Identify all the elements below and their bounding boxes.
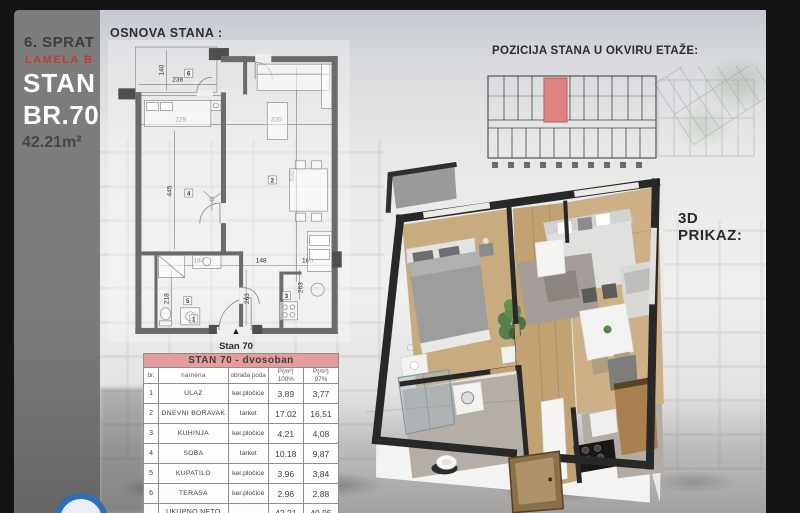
dim-hall-height: 263 <box>244 293 251 304</box>
cell-p97: 2,88 <box>303 484 338 504</box>
col-header-name: namena <box>159 368 229 384</box>
position-title: POZICIJA STANA U OKVIRU ETAŽE: <box>492 45 698 57</box>
cell-no: 1 <box>144 384 159 404</box>
cell-floor: tarket <box>228 444 268 464</box>
stan-pointer: ▲ Stan 70 <box>201 327 271 354</box>
floorplan-drawing: 140 238 229 320 445 532 184 148 160 218 … <box>108 40 350 342</box>
col-header-p100: P(m²) 100% <box>268 368 303 384</box>
cell-floor: ker.pločice <box>228 384 268 404</box>
floorplan-title: OSNOVA STANA : <box>110 26 223 40</box>
total-p100: 42.21 <box>268 504 303 513</box>
lamela-label: LAMELA B <box>25 54 93 66</box>
cell-p97: 3,77 <box>303 384 338 404</box>
area-table: STAN 70 - dvosoban br. namena obrada pod… <box>143 353 339 513</box>
table-row: 3 KUHINJA ker.pločice 4.21 4,08 <box>144 424 339 444</box>
cell-no: 4 <box>144 444 159 464</box>
table-row: 2 DNEVNI BORAVAK tarket 17.02 16,51 <box>144 404 339 424</box>
table-title: STAN 70 - dvosoban <box>144 354 339 368</box>
cell-p100: 3.96 <box>268 464 303 484</box>
col-header-floor: obrada poda <box>228 368 268 384</box>
table-row: 6 TERASA ker.pločice 2.96 2,88 <box>144 484 339 504</box>
cell-name: KUPATILO <box>159 464 229 484</box>
cell-p97: 4,08 <box>303 424 338 444</box>
table-row: 1 ULAZ ker.pločice 3.89 3,77 <box>144 384 339 404</box>
cell-p97: 3,84 <box>303 464 338 484</box>
stan-word: STAN <box>23 68 96 99</box>
cell-p100: 4.21 <box>268 424 303 444</box>
cell-name: KUHINJA <box>159 424 229 444</box>
render3d-drawing <box>366 160 678 513</box>
cell-no <box>144 504 159 513</box>
cell-p97: 9,87 <box>303 444 338 464</box>
brochure-page: 6. SPRAT LAMELA B STAN BR.70 42.21m² OSN… <box>14 10 766 513</box>
screenshot-frame: 6. SPRAT LAMELA B STAN BR.70 42.21m² OSN… <box>0 0 800 513</box>
faded-building-wing <box>655 66 766 156</box>
cell-name: SOBA <box>159 444 229 464</box>
cell-name: TERASA <box>159 484 229 504</box>
cell-p97: 16,51 <box>303 404 338 424</box>
cell-floor: ker.pločice <box>228 484 268 504</box>
dim-terrace-width: 238 <box>172 76 183 83</box>
cell-p100: 2.96 <box>268 484 303 504</box>
north-arrow-icon: ▲ <box>201 327 271 336</box>
floor-label: 6. SPRAT <box>24 34 94 51</box>
cell-name: DNEVNI BORAVAK <box>159 404 229 424</box>
faded-photo-shadow <box>100 388 144 513</box>
cell-floor: ker.pločice <box>228 424 268 444</box>
bed <box>406 238 494 354</box>
cell-name: ULAZ <box>159 384 229 404</box>
col-header-p97: P(m²) 97% <box>303 368 338 384</box>
dim-bedroom-height: 445 <box>167 185 174 196</box>
stan-number: BR.70 <box>23 100 99 131</box>
cell-p100: 3.89 <box>268 384 303 404</box>
stan-area: 42.21m² <box>22 134 82 152</box>
stan-pointer-label: Stan 70 <box>219 341 253 352</box>
cell-floor: ker.pločice <box>228 464 268 484</box>
table-row: 4 SOBA tarket 10.18 9,87 <box>144 444 339 464</box>
total-p97: 40.95 <box>303 504 338 513</box>
info-sidebar: 6. SPRAT LAMELA B STAN BR.70 42.21m² <box>14 10 100 513</box>
total-label: UKUPNO NETO <box>159 504 229 513</box>
cell-p100: 10.18 <box>268 444 303 464</box>
cell-p100: 17.02 <box>268 404 303 424</box>
terrace-nook <box>388 164 456 212</box>
dim-bath-height: 218 <box>164 293 171 304</box>
render3d-title: 3D PRIKAZ: <box>678 210 766 244</box>
cell-no: 6 <box>144 484 159 504</box>
cell-floor <box>228 504 268 513</box>
cell-floor: tarket <box>228 404 268 424</box>
dim-terrace-height: 140 <box>159 64 166 75</box>
etaza-slab <box>488 76 656 168</box>
cell-no: 2 <box>144 404 159 424</box>
cell-no: 3 <box>144 424 159 444</box>
dim-hall-width: 148 <box>256 257 267 264</box>
agency-logo-badge <box>54 493 108 513</box>
cell-no: 5 <box>144 464 159 484</box>
table-row: 5 KUPATILO ker.pločice 3.96 3,84 <box>144 464 339 484</box>
highlighted-unit <box>544 78 567 122</box>
entry-door <box>509 451 563 512</box>
dim-kitchen-height: 263 <box>297 282 304 293</box>
table-total-row: UKUPNO NETO 42.21 40.95 <box>144 504 339 513</box>
col-header-no: br. <box>144 368 159 384</box>
